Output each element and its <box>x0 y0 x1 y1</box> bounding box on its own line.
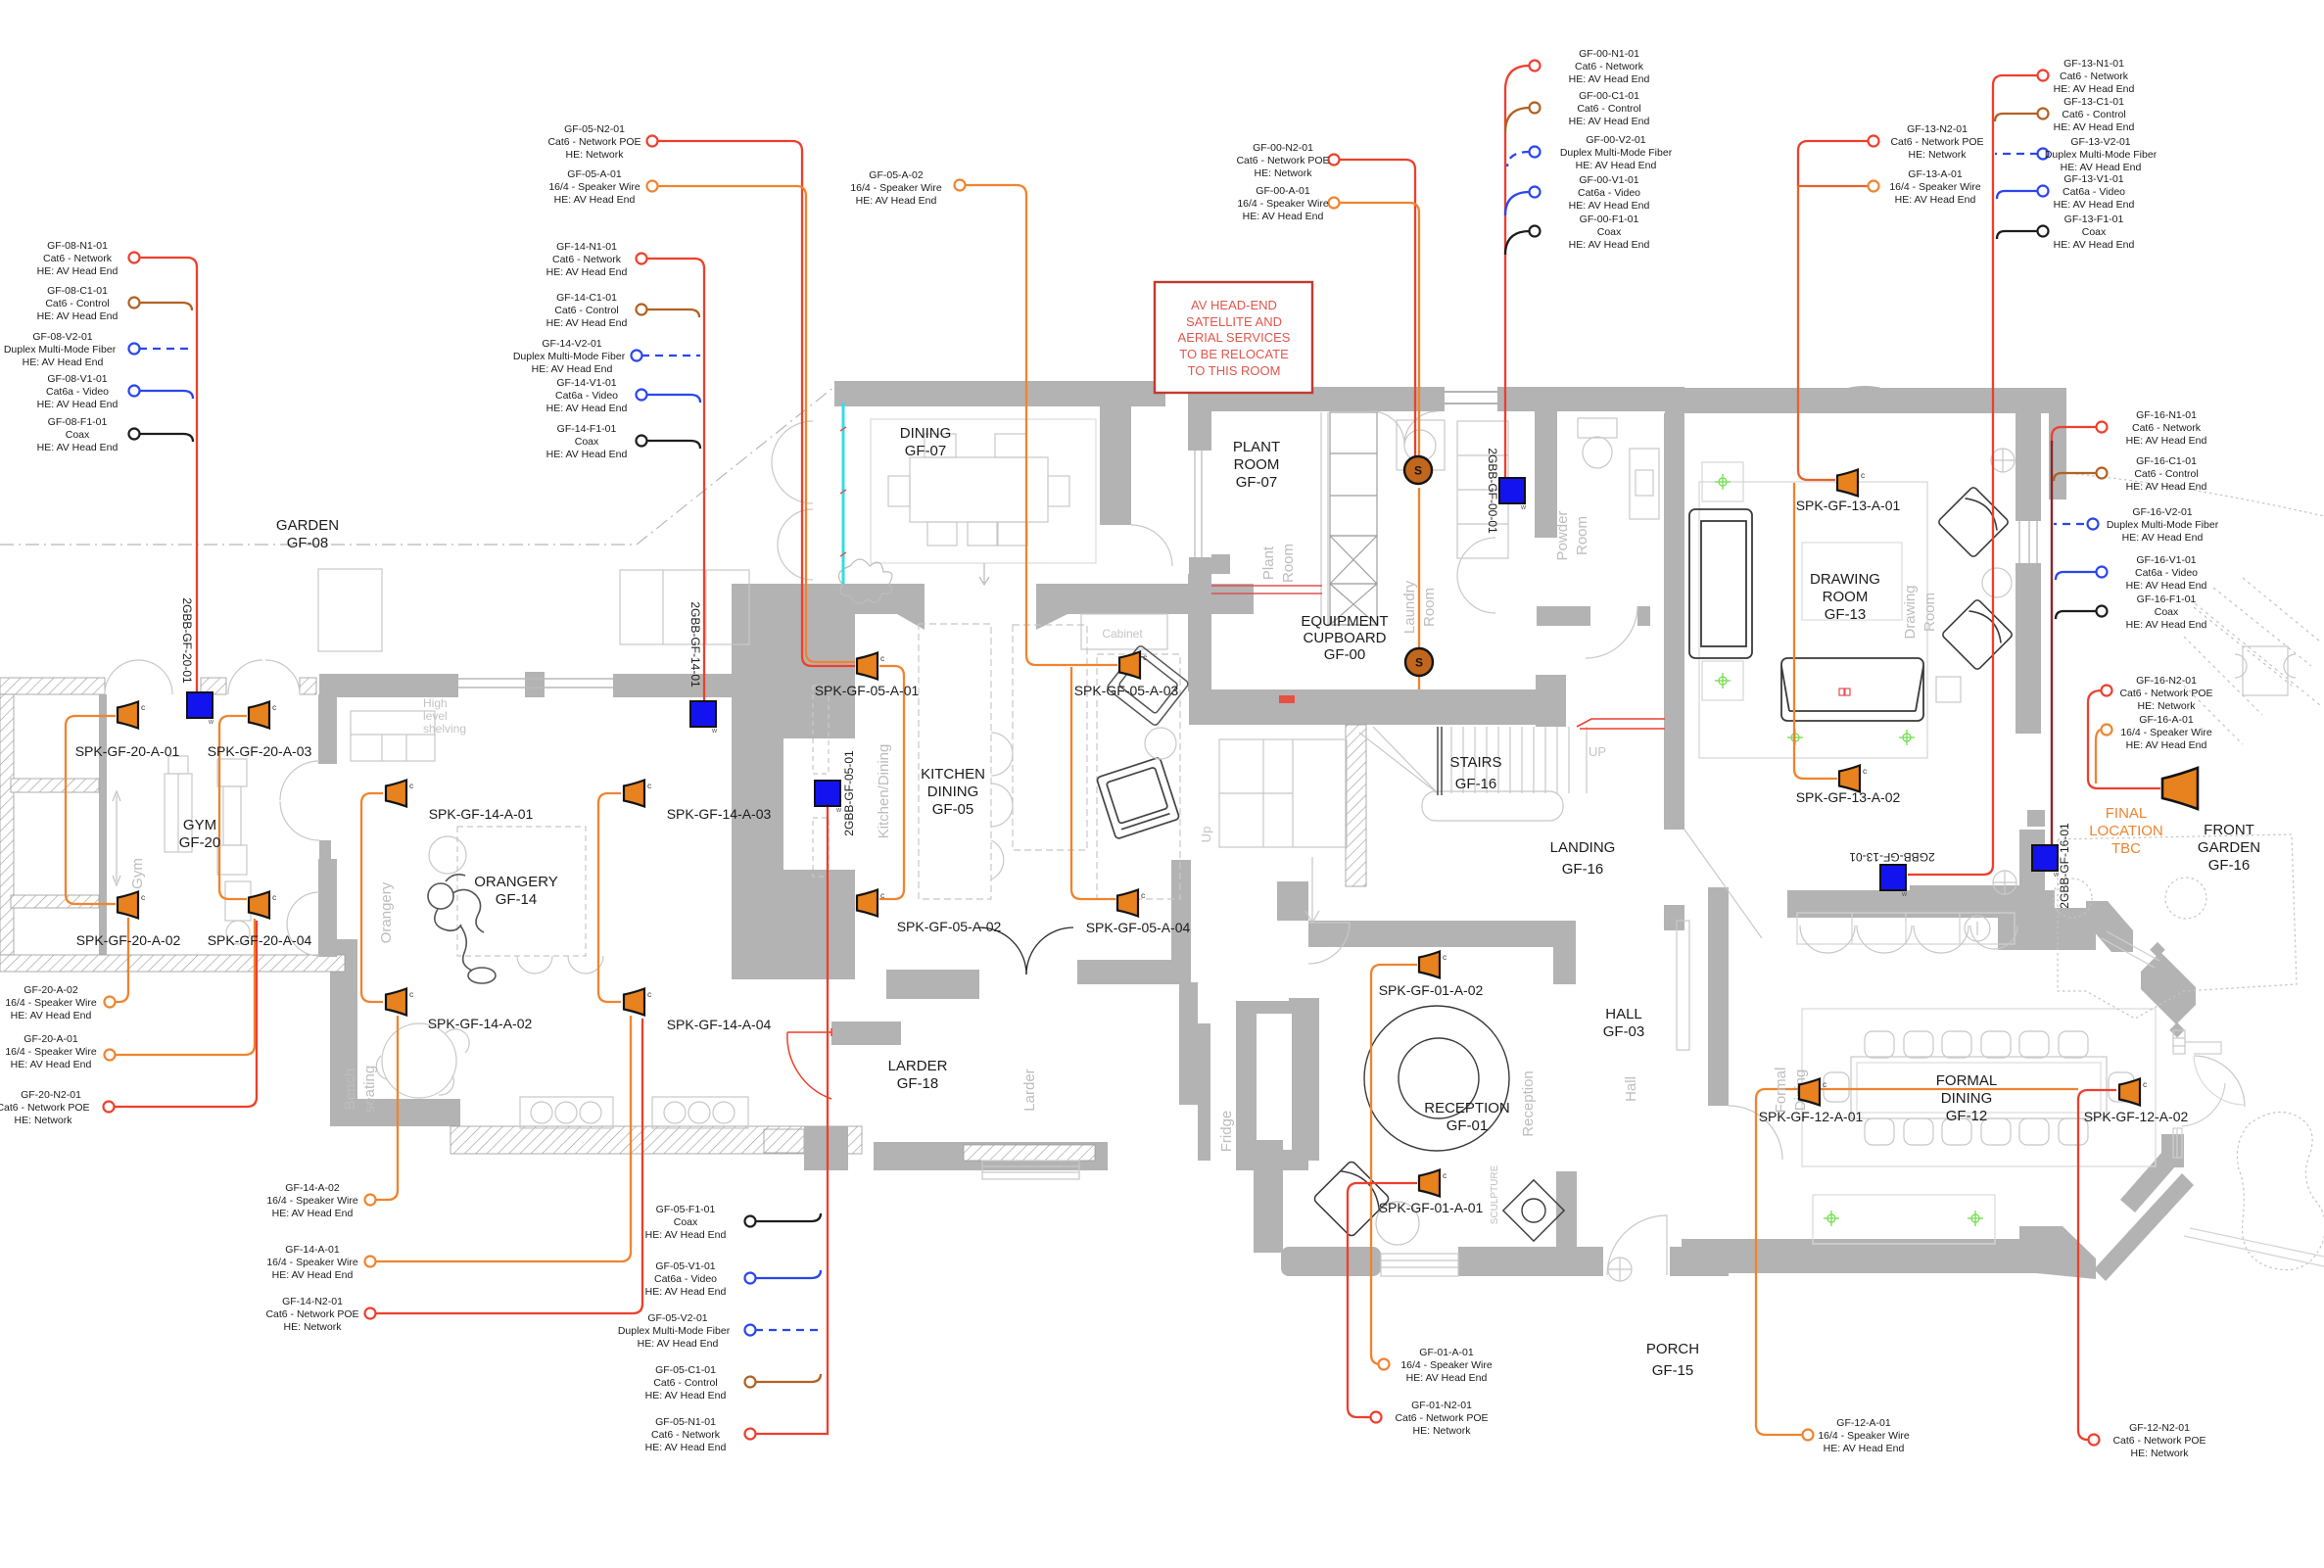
svg-text:Coax: Coax <box>1597 226 1622 238</box>
svg-text:GF-00: GF-00 <box>1324 646 1366 663</box>
svg-text:HE: AV Head End: HE: AV Head End <box>37 399 119 410</box>
svg-text:GF-08-F1-01: GF-08-F1-01 <box>48 416 108 428</box>
svg-text:Gym: Gym <box>129 858 146 889</box>
svg-text:GF-00-V2-01: GF-00-V2-01 <box>1586 134 1645 146</box>
svg-text:HE: AV Head End: HE: AV Head End <box>1569 116 1650 127</box>
svg-text:DINING: DINING <box>1941 1090 1993 1107</box>
svg-text:GF-16-N2-01: GF-16-N2-01 <box>2136 675 2197 687</box>
svg-text:GF-05-V2-01: GF-05-V2-01 <box>647 1312 707 1324</box>
svg-text:GF-00-N2-01: GF-00-N2-01 <box>1253 142 1313 154</box>
svg-text:GF-08-N1-01: GF-08-N1-01 <box>47 240 108 252</box>
svg-text:GF-00-A-01: GF-00-A-01 <box>1256 185 1310 197</box>
svg-text:GF-14-V1-01: GF-14-V1-01 <box>556 377 616 389</box>
svg-text:Cat6a - Video: Cat6a - Video <box>46 386 109 398</box>
svg-text:SCULPTURE: SCULPTURE <box>1490 1164 1500 1224</box>
svg-text:SPK-GF-12-A-02: SPK-GF-12-A-02 <box>2084 1109 2189 1124</box>
svg-text:GYM: GYM <box>183 817 216 833</box>
svg-text:GF-14-F1-01: GF-14-F1-01 <box>557 423 617 435</box>
svg-text:GF-14-N2-01: GF-14-N2-01 <box>282 1296 343 1307</box>
svg-text:Duplex Multi-Mode Fiber: Duplex Multi-Mode Fiber <box>1560 147 1673 159</box>
svg-text:Room: Room <box>1574 516 1590 555</box>
svg-text:HE: Network: HE: Network <box>1909 149 1968 161</box>
svg-text:GF-14-C1-01: GF-14-C1-01 <box>556 292 617 304</box>
svg-text:Room: Room <box>1280 544 1297 583</box>
svg-text:GF-12: GF-12 <box>1946 1108 1988 1124</box>
svg-text:HE: AV Head End: HE: AV Head End <box>2126 580 2207 592</box>
svg-text:HE: AV Head End: HE: AV Head End <box>645 1286 727 1298</box>
svg-text:Hall: Hall <box>1623 1076 1639 1102</box>
svg-text:GF-16-A-01: GF-16-A-01 <box>2139 714 2194 726</box>
svg-text:Duplex Multi-Mode Fiber: Duplex Multi-Mode Fiber <box>513 351 626 362</box>
svg-text:GF-08-C1-01: GF-08-C1-01 <box>47 285 108 297</box>
svg-text:HE: AV Head End: HE: AV Head End <box>2054 121 2135 133</box>
svg-text:HE: AV Head End: HE: AV Head End <box>554 194 636 206</box>
svg-text:Coax: Coax <box>2155 606 2179 618</box>
svg-text:SPK-GF-14-A-03: SPK-GF-14-A-03 <box>667 806 772 822</box>
svg-text:GF-16-V2-01: GF-16-V2-01 <box>2132 506 2192 518</box>
svg-text:16/4 - Speaker Wire: 16/4 - Speaker Wire <box>2120 727 2212 738</box>
svg-text:GF-00-F1-01: GF-00-F1-01 <box>1580 214 1639 225</box>
svg-text:Cat6 - Network POE: Cat6 - Network POE <box>1236 155 1329 166</box>
svg-text:High: High <box>423 696 448 710</box>
svg-text:2GBB-GF-16-01: 2GBB-GF-16-01 <box>2058 823 2071 909</box>
svg-text:16/4 - Speaker Wire: 16/4 - Speaker Wire <box>1889 181 1981 193</box>
svg-text:HE: Network: HE: Network <box>1413 1425 1472 1437</box>
svg-text:GF-13-F1-01: GF-13-F1-01 <box>2064 214 2124 225</box>
svg-text:SPK-GF-13-A-01: SPK-GF-13-A-01 <box>1796 498 1901 513</box>
svg-text:Duplex Multi-Mode Fiber: Duplex Multi-Mode Fiber <box>2045 149 2158 161</box>
svg-text:GF-00-N1-01: GF-00-N1-01 <box>1579 48 1639 60</box>
svg-text:GF-13: GF-13 <box>1825 606 1867 623</box>
svg-text:GF-20-A-01: GF-20-A-01 <box>24 1033 78 1045</box>
svg-text:Cat6 - Network POE: Cat6 - Network POE <box>547 136 640 148</box>
svg-text:Coax: Coax <box>575 436 599 448</box>
svg-text:DINING: DINING <box>900 425 952 442</box>
svg-text:Cat6 - Network POE: Cat6 - Network POE <box>2112 1435 2205 1447</box>
svg-text:HE: AV Head End: HE: AV Head End <box>2061 162 2142 173</box>
svg-text:LOCATION: LOCATION <box>2089 823 2163 839</box>
svg-text:GF-20-A-02: GF-20-A-02 <box>24 984 78 996</box>
svg-text:Cat6 - Control: Cat6 - Control <box>2062 109 2125 120</box>
svg-text:DRAWING: DRAWING <box>1810 571 1880 588</box>
svg-text:level: level <box>423 709 448 723</box>
svg-text:GF-05-N2-01: GF-05-N2-01 <box>564 123 625 135</box>
svg-text:TO THIS ROOM: TO THIS ROOM <box>1188 363 1281 378</box>
svg-text:PLANT: PLANT <box>1233 439 1280 455</box>
svg-text:GF-05-A-02: GF-05-A-02 <box>869 169 924 181</box>
svg-text:2GBB-GF-13-01: 2GBB-GF-13-01 <box>1849 850 1935 864</box>
svg-text:Cat6 - Control: Cat6 - Control <box>2134 468 2198 480</box>
svg-text:HE: AV Head End: HE: AV Head End <box>1824 1443 1905 1454</box>
svg-text:GF-00-C1-01: GF-00-C1-01 <box>1579 90 1639 102</box>
svg-text:HE: AV Head End: HE: AV Head End <box>2122 532 2204 544</box>
svg-text:GF-16-V1-01: GF-16-V1-01 <box>2136 554 2196 566</box>
svg-text:SPK-GF-20-A-03: SPK-GF-20-A-03 <box>208 743 312 759</box>
svg-text:GF-13-N2-01: GF-13-N2-01 <box>1907 123 1968 135</box>
svg-text:Duplex Multi-Mode Fiber: Duplex Multi-Mode Fiber <box>2107 519 2219 531</box>
svg-text:GF-13-C1-01: GF-13-C1-01 <box>2063 96 2124 108</box>
svg-text:SPK-GF-05-A-02: SPK-GF-05-A-02 <box>897 919 1002 934</box>
svg-text:GF-07: GF-07 <box>905 443 947 459</box>
svg-text:GF-15: GF-15 <box>1652 1362 1694 1379</box>
svg-text:TBC: TBC <box>2111 840 2141 857</box>
svg-text:SPK-GF-13-A-02: SPK-GF-13-A-02 <box>1796 789 1901 805</box>
svg-text:FINAL: FINAL <box>2106 805 2148 822</box>
svg-text:16/4 - Speaker Wire: 16/4 - Speaker Wire <box>1237 198 1329 210</box>
svg-text:Room: Room <box>1421 588 1438 627</box>
svg-text:SPK-GF-20-A-01: SPK-GF-20-A-01 <box>75 743 180 759</box>
svg-text:16/4 - Speaker Wire: 16/4 - Speaker Wire <box>266 1195 358 1207</box>
svg-text:GF-05-C1-01: GF-05-C1-01 <box>655 1364 716 1376</box>
svg-text:GF-16: GF-16 <box>1455 776 1497 792</box>
svg-text:TO BE RELOCATE: TO BE RELOCATE <box>1179 347 1289 361</box>
svg-text:GARDEN: GARDEN <box>2198 839 2260 856</box>
svg-text:GF-20: GF-20 <box>179 834 221 851</box>
svg-text:Cat6 - Network: Cat6 - Network <box>651 1429 721 1441</box>
svg-text:Cat6 - Network POE: Cat6 - Network POE <box>1395 1412 1488 1424</box>
svg-text:GF-08-V1-01: GF-08-V1-01 <box>47 373 107 385</box>
svg-text:FRONT: FRONT <box>2204 822 2254 838</box>
svg-text:Cat6 - Control: Cat6 - Control <box>653 1377 717 1389</box>
svg-text:GF-20-N2-01: GF-20-N2-01 <box>21 1089 81 1101</box>
svg-text:SPK-GF-20-A-04: SPK-GF-20-A-04 <box>208 932 312 948</box>
svg-text:GARDEN: GARDEN <box>276 517 339 534</box>
svg-text:GF-13-V2-01: GF-13-V2-01 <box>2070 136 2130 148</box>
svg-text:Kitchen/Dining: Kitchen/Dining <box>876 744 892 839</box>
svg-text:Bench: Bench <box>342 1069 358 1111</box>
svg-text:GF-16: GF-16 <box>2208 857 2251 874</box>
svg-text:GF-16-N1-01: GF-16-N1-01 <box>2136 409 2197 421</box>
svg-text:2GBB-GF-05-01: 2GBB-GF-05-01 <box>842 750 856 836</box>
svg-text:HE: Network: HE: Network <box>2138 700 2197 712</box>
svg-text:DINING: DINING <box>927 784 979 800</box>
svg-text:GF-13-N1-01: GF-13-N1-01 <box>2063 58 2124 70</box>
svg-text:HE: AV Head End: HE: AV Head End <box>1569 200 1650 212</box>
svg-text:SPK-GF-05-A-01: SPK-GF-05-A-01 <box>815 683 920 698</box>
svg-text:STAIRS: STAIRS <box>1449 754 1501 771</box>
svg-text:16/4 - Speaker Wire: 16/4 - Speaker Wire <box>1400 1359 1493 1371</box>
svg-text:SPK-GF-05-A-03: SPK-GF-05-A-03 <box>1074 683 1179 698</box>
svg-text:HE: AV Head End: HE: AV Head End <box>2054 199 2135 211</box>
svg-text:2GBB-GF-00-01: 2GBB-GF-00-01 <box>1486 448 1499 534</box>
svg-text:Up: Up <box>1199 827 1213 843</box>
svg-text:SATELLITE AND: SATELLITE AND <box>1186 314 1282 329</box>
svg-text:Cat6 - Network: Cat6 - Network <box>1575 61 1644 72</box>
svg-text:GF-12-A-01: GF-12-A-01 <box>1836 1417 1891 1429</box>
svg-text:HE: AV Head End: HE: AV Head End <box>2126 435 2207 447</box>
svg-text:Cat6 - Network POE: Cat6 - Network POE <box>0 1102 90 1114</box>
svg-text:GF-03: GF-03 <box>1603 1023 1645 1040</box>
svg-text:HE: AV Head End: HE: AV Head End <box>2054 239 2135 251</box>
svg-text:seating: seating <box>361 1066 378 1113</box>
svg-text:SPK-GF-20-A-02: SPK-GF-20-A-02 <box>76 932 181 948</box>
svg-text:shelving: shelving <box>423 722 466 736</box>
svg-text:SPK-GF-14-A-01: SPK-GF-14-A-01 <box>429 806 534 822</box>
svg-text:Cat6a - Video: Cat6a - Video <box>1578 187 1640 199</box>
svg-text:HE: AV Head End: HE: AV Head End <box>546 317 628 329</box>
svg-text:GF-14: GF-14 <box>496 891 538 908</box>
svg-text:GF-05-A-01: GF-05-A-01 <box>567 168 622 180</box>
svg-text:KITCHEN: KITCHEN <box>921 766 985 783</box>
svg-text:HE: AV Head End: HE: AV Head End <box>856 195 937 207</box>
svg-text:Cat6 - Network POE: Cat6 - Network POE <box>265 1308 358 1320</box>
svg-text:Cat6 - Network: Cat6 - Network <box>2060 71 2129 82</box>
svg-text:GF-16-F1-01: GF-16-F1-01 <box>2137 594 2197 605</box>
svg-text:Coax: Coax <box>2082 226 2107 238</box>
svg-text:EQUIPMENT: EQUIPMENT <box>1301 613 1388 630</box>
svg-text:HALL: HALL <box>1605 1006 1642 1022</box>
svg-text:SPK-GF-05-A-04: SPK-GF-05-A-04 <box>1086 920 1191 935</box>
svg-text:GF-12-N2-01: GF-12-N2-01 <box>2129 1422 2190 1434</box>
svg-text:HE: AV Head End: HE: AV Head End <box>37 442 119 453</box>
svg-text:16/4 - Speaker Wire: 16/4 - Speaker Wire <box>266 1257 358 1268</box>
svg-text:HE: AV Head End: HE: AV Head End <box>1243 211 1324 222</box>
svg-text:Cat6a - Video: Cat6a - Video <box>2135 567 2198 579</box>
svg-text:16/4 - Speaker Wire: 16/4 - Speaker Wire <box>5 997 97 1009</box>
svg-text:HE: Network: HE: Network <box>1255 167 1313 179</box>
svg-text:Larder: Larder <box>1021 1069 1038 1111</box>
svg-text:ROOM: ROOM <box>1823 589 1869 605</box>
svg-text:16/4 - Speaker Wire: 16/4 - Speaker Wire <box>1818 1430 1910 1442</box>
svg-text:GF-14-V2-01: GF-14-V2-01 <box>542 338 601 350</box>
svg-text:Cabinet: Cabinet <box>1102 627 1143 641</box>
svg-text:HE: AV Head End: HE: AV Head End <box>546 449 628 460</box>
svg-text:GF-07: GF-07 <box>1236 474 1278 491</box>
svg-text:PORCH: PORCH <box>1646 1341 1699 1357</box>
svg-text:HE: AV Head End: HE: AV Head End <box>11 1059 92 1070</box>
svg-text:GF-14-A-02: GF-14-A-02 <box>285 1182 340 1194</box>
svg-text:CUPBOARD: CUPBOARD <box>1303 630 1386 646</box>
svg-text:ORANGERY: ORANGERY <box>474 874 558 890</box>
svg-text:Duplex Multi-Mode Fiber: Duplex Multi-Mode Fiber <box>4 344 117 356</box>
svg-text:HE: AV Head End: HE: AV Head End <box>1576 160 1657 171</box>
svg-text:SPK-GF-01-A-01: SPK-GF-01-A-01 <box>1379 1200 1484 1215</box>
svg-text:GF-16-C1-01: GF-16-C1-01 <box>2136 455 2197 467</box>
svg-text:SPK-GF-14-A-02: SPK-GF-14-A-02 <box>428 1016 533 1031</box>
svg-text:HE: AV Head End: HE: AV Head End <box>2126 619 2207 631</box>
svg-text:GF-16: GF-16 <box>1562 861 1604 878</box>
svg-text:HE: Network: HE: Network <box>566 149 625 161</box>
svg-text:GF-08-V2-01: GF-08-V2-01 <box>32 331 92 343</box>
svg-text:Laundry: Laundry <box>1401 580 1418 634</box>
svg-text:Cat6 - Network POE: Cat6 - Network POE <box>2119 688 2212 699</box>
svg-text:HE: AV Head End: HE: AV Head End <box>1406 1372 1488 1384</box>
svg-text:HE: Network: HE: Network <box>284 1321 343 1333</box>
svg-text:Room: Room <box>1921 593 1938 632</box>
svg-text:HE: AV Head End: HE: AV Head End <box>1569 239 1650 251</box>
svg-text:HE: AV Head End: HE: AV Head End <box>2126 481 2207 493</box>
svg-text:HE: AV Head End: HE: AV Head End <box>272 1208 354 1219</box>
svg-text:Cat6 - Network: Cat6 - Network <box>552 254 622 265</box>
svg-text:Cat6 - Control: Cat6 - Control <box>1577 103 1640 115</box>
svg-text:Coax: Coax <box>66 429 90 441</box>
svg-text:HE: AV Head End: HE: AV Head End <box>645 1390 727 1402</box>
svg-text:HE: AV Head End: HE: AV Head End <box>37 310 119 322</box>
svg-text:Cat6 - Network POE: Cat6 - Network POE <box>1890 136 1983 148</box>
svg-text:GF-01-N2-01: GF-01-N2-01 <box>1411 1400 1472 1411</box>
svg-text:GF-18: GF-18 <box>897 1075 939 1092</box>
svg-text:Drawing: Drawing <box>1902 585 1919 639</box>
svg-text:2GBB-GF-20-01: 2GBB-GF-20-01 <box>180 597 194 684</box>
svg-text:GF-14-A-01: GF-14-A-01 <box>285 1244 340 1256</box>
svg-text:Duplex Multi-Mode Fiber: Duplex Multi-Mode Fiber <box>618 1325 731 1337</box>
svg-text:16/4 - Speaker Wire: 16/4 - Speaker Wire <box>548 181 640 193</box>
svg-text:GF-05: GF-05 <box>932 801 974 818</box>
svg-text:HE: AV Head End: HE: AV Head End <box>546 403 628 414</box>
svg-text:SPK-GF-01-A-02: SPK-GF-01-A-02 <box>1379 982 1484 998</box>
svg-text:HE: AV Head End: HE: AV Head End <box>11 1010 92 1022</box>
svg-text:RECEPTION: RECEPTION <box>1424 1100 1510 1117</box>
svg-text:FORMAL: FORMAL <box>1936 1072 1998 1089</box>
svg-text:Cat6a - Video: Cat6a - Video <box>2063 186 2125 198</box>
svg-text:AERIAL SERVICES: AERIAL SERVICES <box>1178 330 1291 345</box>
svg-text:HE: Network: HE: Network <box>15 1115 73 1126</box>
svg-text:Cat6a - Video: Cat6a - Video <box>654 1273 717 1285</box>
svg-text:HE: AV Head End: HE: AV Head End <box>532 363 613 375</box>
svg-text:SPK-GF-14-A-04: SPK-GF-14-A-04 <box>667 1017 772 1032</box>
svg-text:AV HEAD-END: AV HEAD-END <box>1191 298 1277 312</box>
svg-text:Fridge: Fridge <box>1218 1111 1235 1153</box>
svg-text:Plant: Plant <box>1260 546 1277 580</box>
svg-text:LANDING: LANDING <box>1550 839 1616 856</box>
svg-text:UP: UP <box>1589 744 1606 759</box>
svg-text:GF-01: GF-01 <box>1447 1117 1489 1134</box>
svg-text:GF-14-N1-01: GF-14-N1-01 <box>556 241 617 253</box>
svg-text:GF-13-V1-01: GF-13-V1-01 <box>2063 173 2123 185</box>
svg-text:GF-08: GF-08 <box>287 535 329 551</box>
svg-text:Cat6 - Control: Cat6 - Control <box>554 305 618 316</box>
svg-text:HE: AV Head End: HE: AV Head End <box>645 1229 727 1241</box>
svg-text:HE: AV Head End: HE: AV Head End <box>638 1338 719 1350</box>
svg-text:HE: AV Head End: HE: AV Head End <box>2054 83 2135 95</box>
svg-text:HE: Network: HE: Network <box>2131 1448 2190 1459</box>
svg-text:Formal: Formal <box>1773 1068 1789 1114</box>
svg-text:GF-01-A-01: GF-01-A-01 <box>1419 1347 1474 1358</box>
svg-text:Cat6a - Video: Cat6a - Video <box>555 390 618 402</box>
svg-text:GF-00-V1-01: GF-00-V1-01 <box>1579 174 1638 186</box>
svg-text:SPK-GF-12-A-01: SPK-GF-12-A-01 <box>1759 1109 1864 1124</box>
svg-text:ROOM: ROOM <box>1234 456 1280 473</box>
svg-text:Cat6 - Network: Cat6 - Network <box>43 253 113 264</box>
svg-text:HE: AV Head End: HE: AV Head End <box>272 1269 354 1281</box>
svg-text:Reception: Reception <box>1520 1070 1537 1137</box>
svg-text:16/4 - Speaker Wire: 16/4 - Speaker Wire <box>5 1046 97 1058</box>
svg-text:GF-05-F1-01: GF-05-F1-01 <box>656 1204 716 1215</box>
svg-text:HE: AV Head End: HE: AV Head End <box>23 356 104 368</box>
svg-text:HE: AV Head End: HE: AV Head End <box>546 266 628 278</box>
svg-text:HE: AV Head End: HE: AV Head End <box>1569 73 1650 85</box>
svg-text:Cat6 - Network: Cat6 - Network <box>2132 422 2202 434</box>
svg-text:HE: AV Head End: HE: AV Head End <box>1895 194 1976 206</box>
svg-text:LARDER: LARDER <box>888 1058 948 1074</box>
svg-text:Powder: Powder <box>1554 511 1571 561</box>
svg-text:2GBB-GF-14-01: 2GBB-GF-14-01 <box>688 601 702 688</box>
svg-text:16/4 - Speaker Wire: 16/4 - Speaker Wire <box>850 182 942 194</box>
svg-text:HE: AV Head End: HE: AV Head End <box>37 265 119 277</box>
svg-text:Cat6 - Control: Cat6 - Control <box>45 298 109 309</box>
svg-text:HE: AV Head End: HE: AV Head End <box>645 1442 727 1453</box>
svg-text:GF-13-A-01: GF-13-A-01 <box>1908 168 1963 180</box>
svg-text:Coax: Coax <box>674 1216 698 1228</box>
svg-text:GF-05-V1-01: GF-05-V1-01 <box>655 1260 715 1272</box>
svg-text:Orangery: Orangery <box>378 881 395 943</box>
svg-text:HE: AV Head End: HE: AV Head End <box>2126 739 2207 751</box>
svg-text:GF-05-N1-01: GF-05-N1-01 <box>655 1416 716 1428</box>
